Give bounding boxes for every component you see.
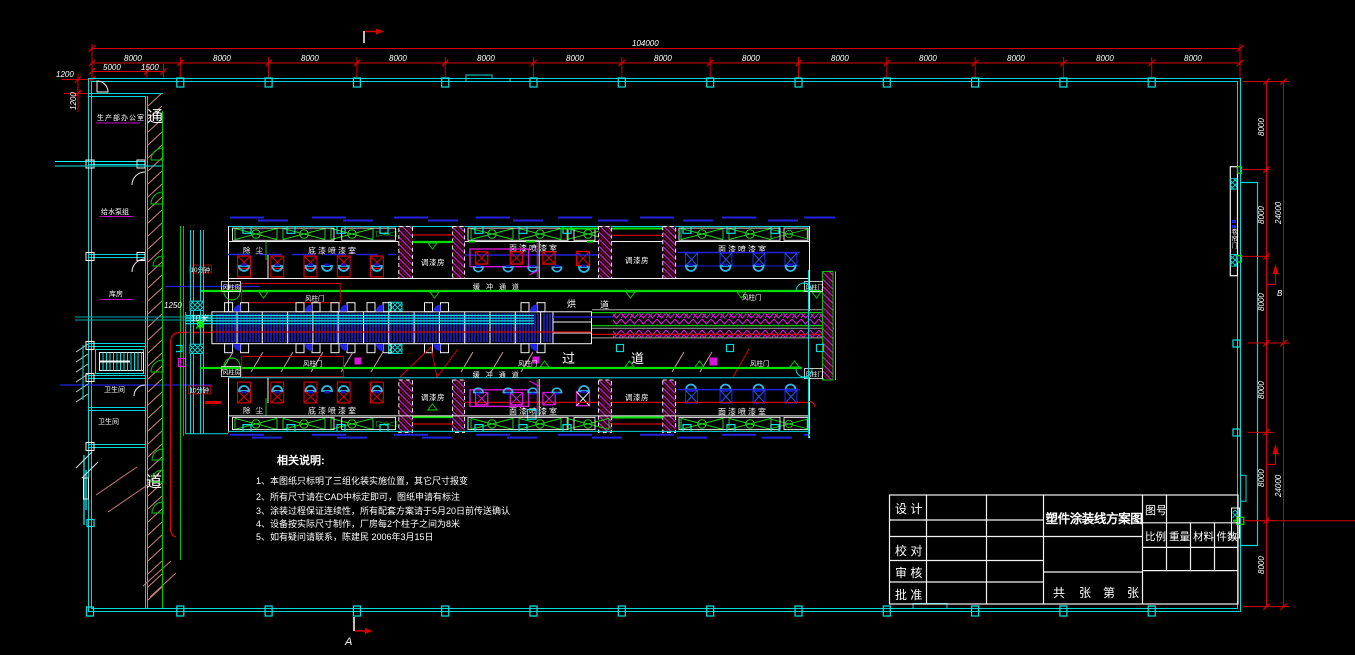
svg-text:审 核: 审 核 — [895, 565, 922, 580]
svg-text:风柱门: 风柱门 — [305, 294, 325, 303]
svg-text:面漆喷漆室: 面漆喷漆室 — [509, 406, 559, 416]
svg-text:缓冲通道: 缓冲通道 — [473, 370, 525, 379]
svg-text:道: 道 — [600, 299, 609, 310]
svg-text:1500: 1500 — [141, 63, 159, 72]
svg-text:给水泵组: 给水泵组 — [101, 207, 129, 216]
svg-text:8000: 8000 — [919, 54, 937, 63]
svg-text:除尘: 除尘 — [243, 245, 268, 255]
svg-text:底漆喷漆室: 底漆喷漆室 — [308, 406, 358, 416]
svg-text:8000: 8000 — [1184, 54, 1202, 63]
svg-text:卷: 卷 — [1232, 228, 1238, 236]
svg-text:除尘: 除尘 — [243, 405, 268, 415]
svg-text:卫生间: 卫生间 — [98, 417, 119, 426]
svg-text:1、本图纸只标明了三组化装实施位置，其它尺寸报变: 1、本图纸只标明了三组化装实施位置，其它尺寸报变 — [256, 475, 468, 486]
svg-text:风柱门: 风柱门 — [750, 359, 770, 368]
svg-text:张: 张 — [1079, 586, 1091, 600]
svg-text:8000: 8000 — [1257, 469, 1266, 487]
svg-text:8000: 8000 — [1257, 556, 1266, 574]
svg-text:生产部办公室: 生产部办公室 — [97, 113, 145, 122]
svg-text:库房: 库房 — [109, 289, 123, 298]
svg-text:第: 第 — [1103, 586, 1115, 600]
svg-text:8000: 8000 — [213, 54, 231, 63]
svg-text:材料: 材料 — [1193, 530, 1215, 543]
svg-text:1200: 1200 — [56, 70, 74, 79]
svg-text:帘: 帘 — [1232, 235, 1238, 243]
svg-text:8000: 8000 — [301, 54, 319, 63]
svg-text:风柱门: 风柱门 — [742, 293, 762, 302]
svg-text:8000: 8000 — [124, 54, 142, 63]
svg-text:24000: 24000 — [1274, 201, 1283, 225]
svg-text:调漆房: 调漆房 — [625, 255, 649, 265]
svg-text:烘: 烘 — [567, 298, 576, 309]
svg-text:相关说明:: 相关说明: — [277, 453, 325, 467]
svg-text:1200: 1200 — [69, 92, 78, 110]
svg-text:风柱房: 风柱房 — [223, 369, 241, 377]
svg-text:8000: 8000 — [1257, 206, 1266, 224]
svg-text:塑件涂装线方案图: 塑件涂装线方案图 — [1046, 511, 1143, 526]
svg-text:8000: 8000 — [1257, 118, 1266, 136]
svg-text:8000: 8000 — [566, 54, 584, 63]
svg-text:比例: 比例 — [1145, 530, 1166, 543]
svg-text:3、涂装过程保证连续性，所有配套方案请于5月20日前传送确认: 3、涂装过程保证连续性，所有配套方案请于5月20日前传送确认 — [256, 505, 510, 516]
svg-text:调漆房: 调漆房 — [421, 392, 445, 402]
svg-text:8000: 8000 — [1007, 54, 1025, 63]
svg-text:5000: 5000 — [103, 63, 121, 72]
svg-text:10米: 10米 — [191, 314, 209, 323]
svg-text:风柱房: 风柱房 — [223, 284, 241, 292]
svg-text:通: 通 — [147, 108, 163, 126]
svg-text:104000: 104000 — [632, 39, 659, 48]
svg-text:共: 共 — [1053, 586, 1065, 600]
svg-text:8000: 8000 — [1257, 293, 1266, 311]
svg-text:面漆喷漆室: 面漆喷漆室 — [718, 407, 768, 417]
svg-text:8000: 8000 — [831, 54, 849, 63]
svg-text:5、如有疑问请联系，陈建民 2006年3月15日: 5、如有疑问请联系，陈建民 2006年3月15日 — [256, 531, 434, 542]
svg-text:设 计: 设 计 — [895, 502, 922, 516]
svg-text:门: 门 — [1232, 242, 1238, 250]
svg-text:A: A — [344, 636, 352, 648]
svg-text:缓冲通道: 缓冲通道 — [473, 282, 525, 291]
svg-text:24000: 24000 — [1274, 474, 1283, 498]
svg-text:1250: 1250 — [164, 301, 182, 310]
svg-text:B: B — [1277, 289, 1283, 298]
svg-text:过: 过 — [562, 351, 575, 366]
svg-text:4、设备按实际尺寸制作，厂房每2个柱子之间为8米: 4、设备按实际尺寸制作，厂房每2个柱子之间为8米 — [256, 518, 460, 529]
svg-text:8000: 8000 — [477, 54, 495, 63]
svg-text:8000: 8000 — [1257, 381, 1266, 399]
svg-text:风柱门: 风柱门 — [303, 359, 323, 368]
svg-text:重量: 重量 — [1169, 530, 1191, 543]
svg-text:调漆房: 调漆房 — [421, 257, 445, 267]
svg-text:8000: 8000 — [1096, 54, 1114, 63]
svg-text:10分钟: 10分钟 — [190, 386, 210, 395]
svg-text:道: 道 — [631, 351, 644, 366]
svg-text:卫生间: 卫生间 — [104, 385, 125, 394]
svg-text:件数: 件数 — [1217, 530, 1239, 543]
svg-text:8000: 8000 — [389, 54, 407, 63]
svg-text:2、所有尺寸请在CAD中标定即可，图纸申请有标注: 2、所有尺寸请在CAD中标定即可，图纸申请有标注 — [256, 491, 460, 502]
svg-text:张: 张 — [1127, 586, 1139, 600]
svg-text:图号: 图号 — [1145, 504, 1167, 517]
svg-text:8000: 8000 — [742, 54, 760, 63]
svg-text:风柱门: 风柱门 — [518, 359, 538, 368]
svg-text:调漆房: 调漆房 — [625, 392, 649, 402]
svg-text:8000: 8000 — [654, 54, 672, 63]
svg-text:批 准: 批 准 — [895, 587, 922, 602]
svg-text:校 对: 校 对 — [895, 543, 922, 558]
